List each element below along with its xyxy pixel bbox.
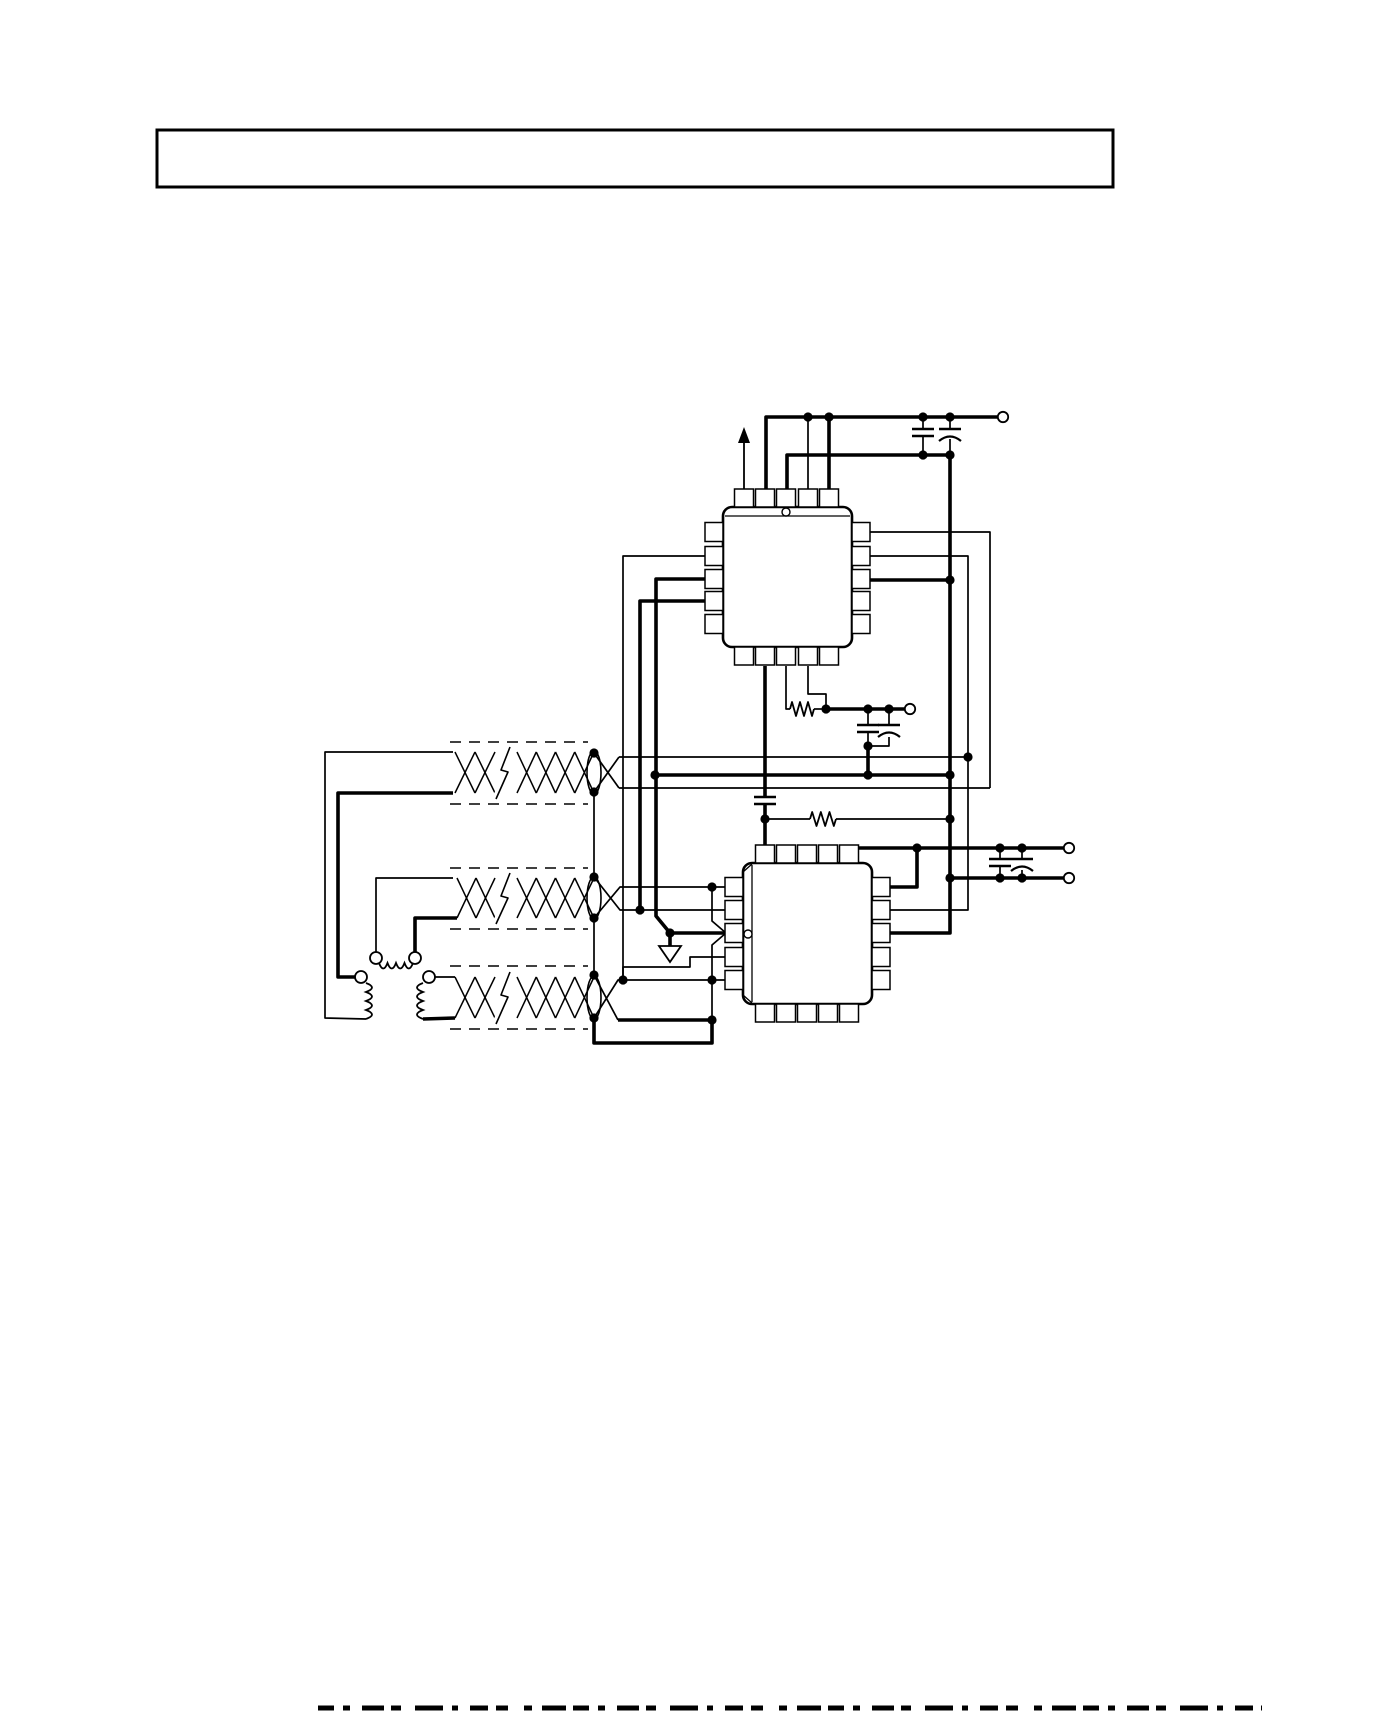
ic-pin <box>819 1004 838 1022</box>
ic-pin <box>725 878 743 897</box>
winding-terminal-circle <box>355 971 367 983</box>
junction-dot <box>918 412 927 421</box>
junction-dot <box>945 412 954 421</box>
terminal-circle <box>905 704 915 714</box>
junction-dot <box>589 748 598 757</box>
ic-pin <box>799 489 818 507</box>
ic-pin <box>852 592 870 611</box>
terminal-circle <box>1064 843 1074 853</box>
junction-dot <box>803 412 812 421</box>
junction-dot <box>863 770 872 779</box>
junction-dot <box>760 814 769 823</box>
winding-terminal-circle <box>423 971 435 983</box>
ic-pin <box>756 1004 775 1022</box>
junction-dot <box>707 882 716 891</box>
junction-dot <box>650 770 659 779</box>
junction-dot <box>589 787 598 796</box>
wire-thick <box>423 1018 455 1019</box>
terminal-circle <box>998 412 1008 422</box>
ic-pin <box>777 489 796 507</box>
junction-dot <box>824 412 833 421</box>
junction-dot <box>945 873 954 882</box>
ic-pin <box>852 615 870 634</box>
ic-pin <box>725 924 743 943</box>
junction-dot <box>1017 843 1026 852</box>
ic-pin <box>756 489 775 507</box>
ic-pin <box>735 647 754 665</box>
ic-pin <box>820 489 839 507</box>
pin1-indicator-icon <box>782 508 790 516</box>
junction-dot <box>589 872 598 881</box>
page-background <box>0 0 1399 1711</box>
junction-dot <box>1017 873 1026 882</box>
ic-pin <box>798 1004 817 1022</box>
ic-pin <box>756 845 775 863</box>
junction-dot <box>618 975 627 984</box>
junction-dot <box>821 704 830 713</box>
ic-pin <box>820 647 839 665</box>
ic-pin <box>705 570 723 589</box>
ic-bottom-body <box>743 863 872 1004</box>
ic-pin <box>799 647 818 665</box>
ic-pin <box>872 971 890 990</box>
winding-terminal-circle <box>409 952 421 964</box>
pin1-indicator-icon <box>744 930 752 938</box>
terminal-circle <box>1064 873 1074 883</box>
ic-pin <box>872 901 890 920</box>
junction-dot <box>884 704 893 713</box>
junction-dot <box>589 1013 598 1022</box>
junction-dot <box>665 928 674 937</box>
junction-dot <box>863 704 872 713</box>
ic-top-body <box>723 507 852 647</box>
junction-dot <box>945 814 954 823</box>
junction-dot <box>963 752 972 761</box>
junction-dot <box>995 843 1004 852</box>
junction-dot <box>918 450 927 459</box>
ic-pin <box>840 845 859 863</box>
ic-pin <box>725 971 743 990</box>
ic-pin <box>777 845 796 863</box>
schematic-canvas <box>0 0 1399 1711</box>
ic-pin <box>777 647 796 665</box>
junction-dot <box>589 913 598 922</box>
ic-pin <box>705 592 723 611</box>
ic-pin <box>852 547 870 566</box>
junction-dot <box>707 975 716 984</box>
junction-dot <box>945 575 954 584</box>
ic-pin <box>725 948 743 967</box>
ic-pin <box>756 647 775 665</box>
junction-dot <box>589 970 598 979</box>
ic-pin <box>872 924 890 943</box>
junction-dot <box>707 1015 716 1024</box>
ic-pin <box>705 523 723 542</box>
ic-pin <box>872 948 890 967</box>
junction-dot <box>863 741 872 750</box>
junction-dot <box>995 873 1004 882</box>
winding-terminal-circle <box>370 952 382 964</box>
ic-pin <box>872 878 890 897</box>
ic-pin <box>852 570 870 589</box>
document-page <box>0 0 1399 1711</box>
ic-pin <box>798 845 817 863</box>
ic-pin <box>735 489 754 507</box>
ic-pin <box>840 1004 859 1022</box>
ic-pin <box>725 901 743 920</box>
ic-pin <box>852 523 870 542</box>
junction-dot <box>945 770 954 779</box>
junction-dot <box>635 905 644 914</box>
ic-pin <box>705 615 723 634</box>
junction-dot <box>912 843 921 852</box>
ic-pin <box>819 845 838 863</box>
ic-pin <box>777 1004 796 1022</box>
junction-dot <box>945 450 954 459</box>
ic-pin <box>705 547 723 566</box>
